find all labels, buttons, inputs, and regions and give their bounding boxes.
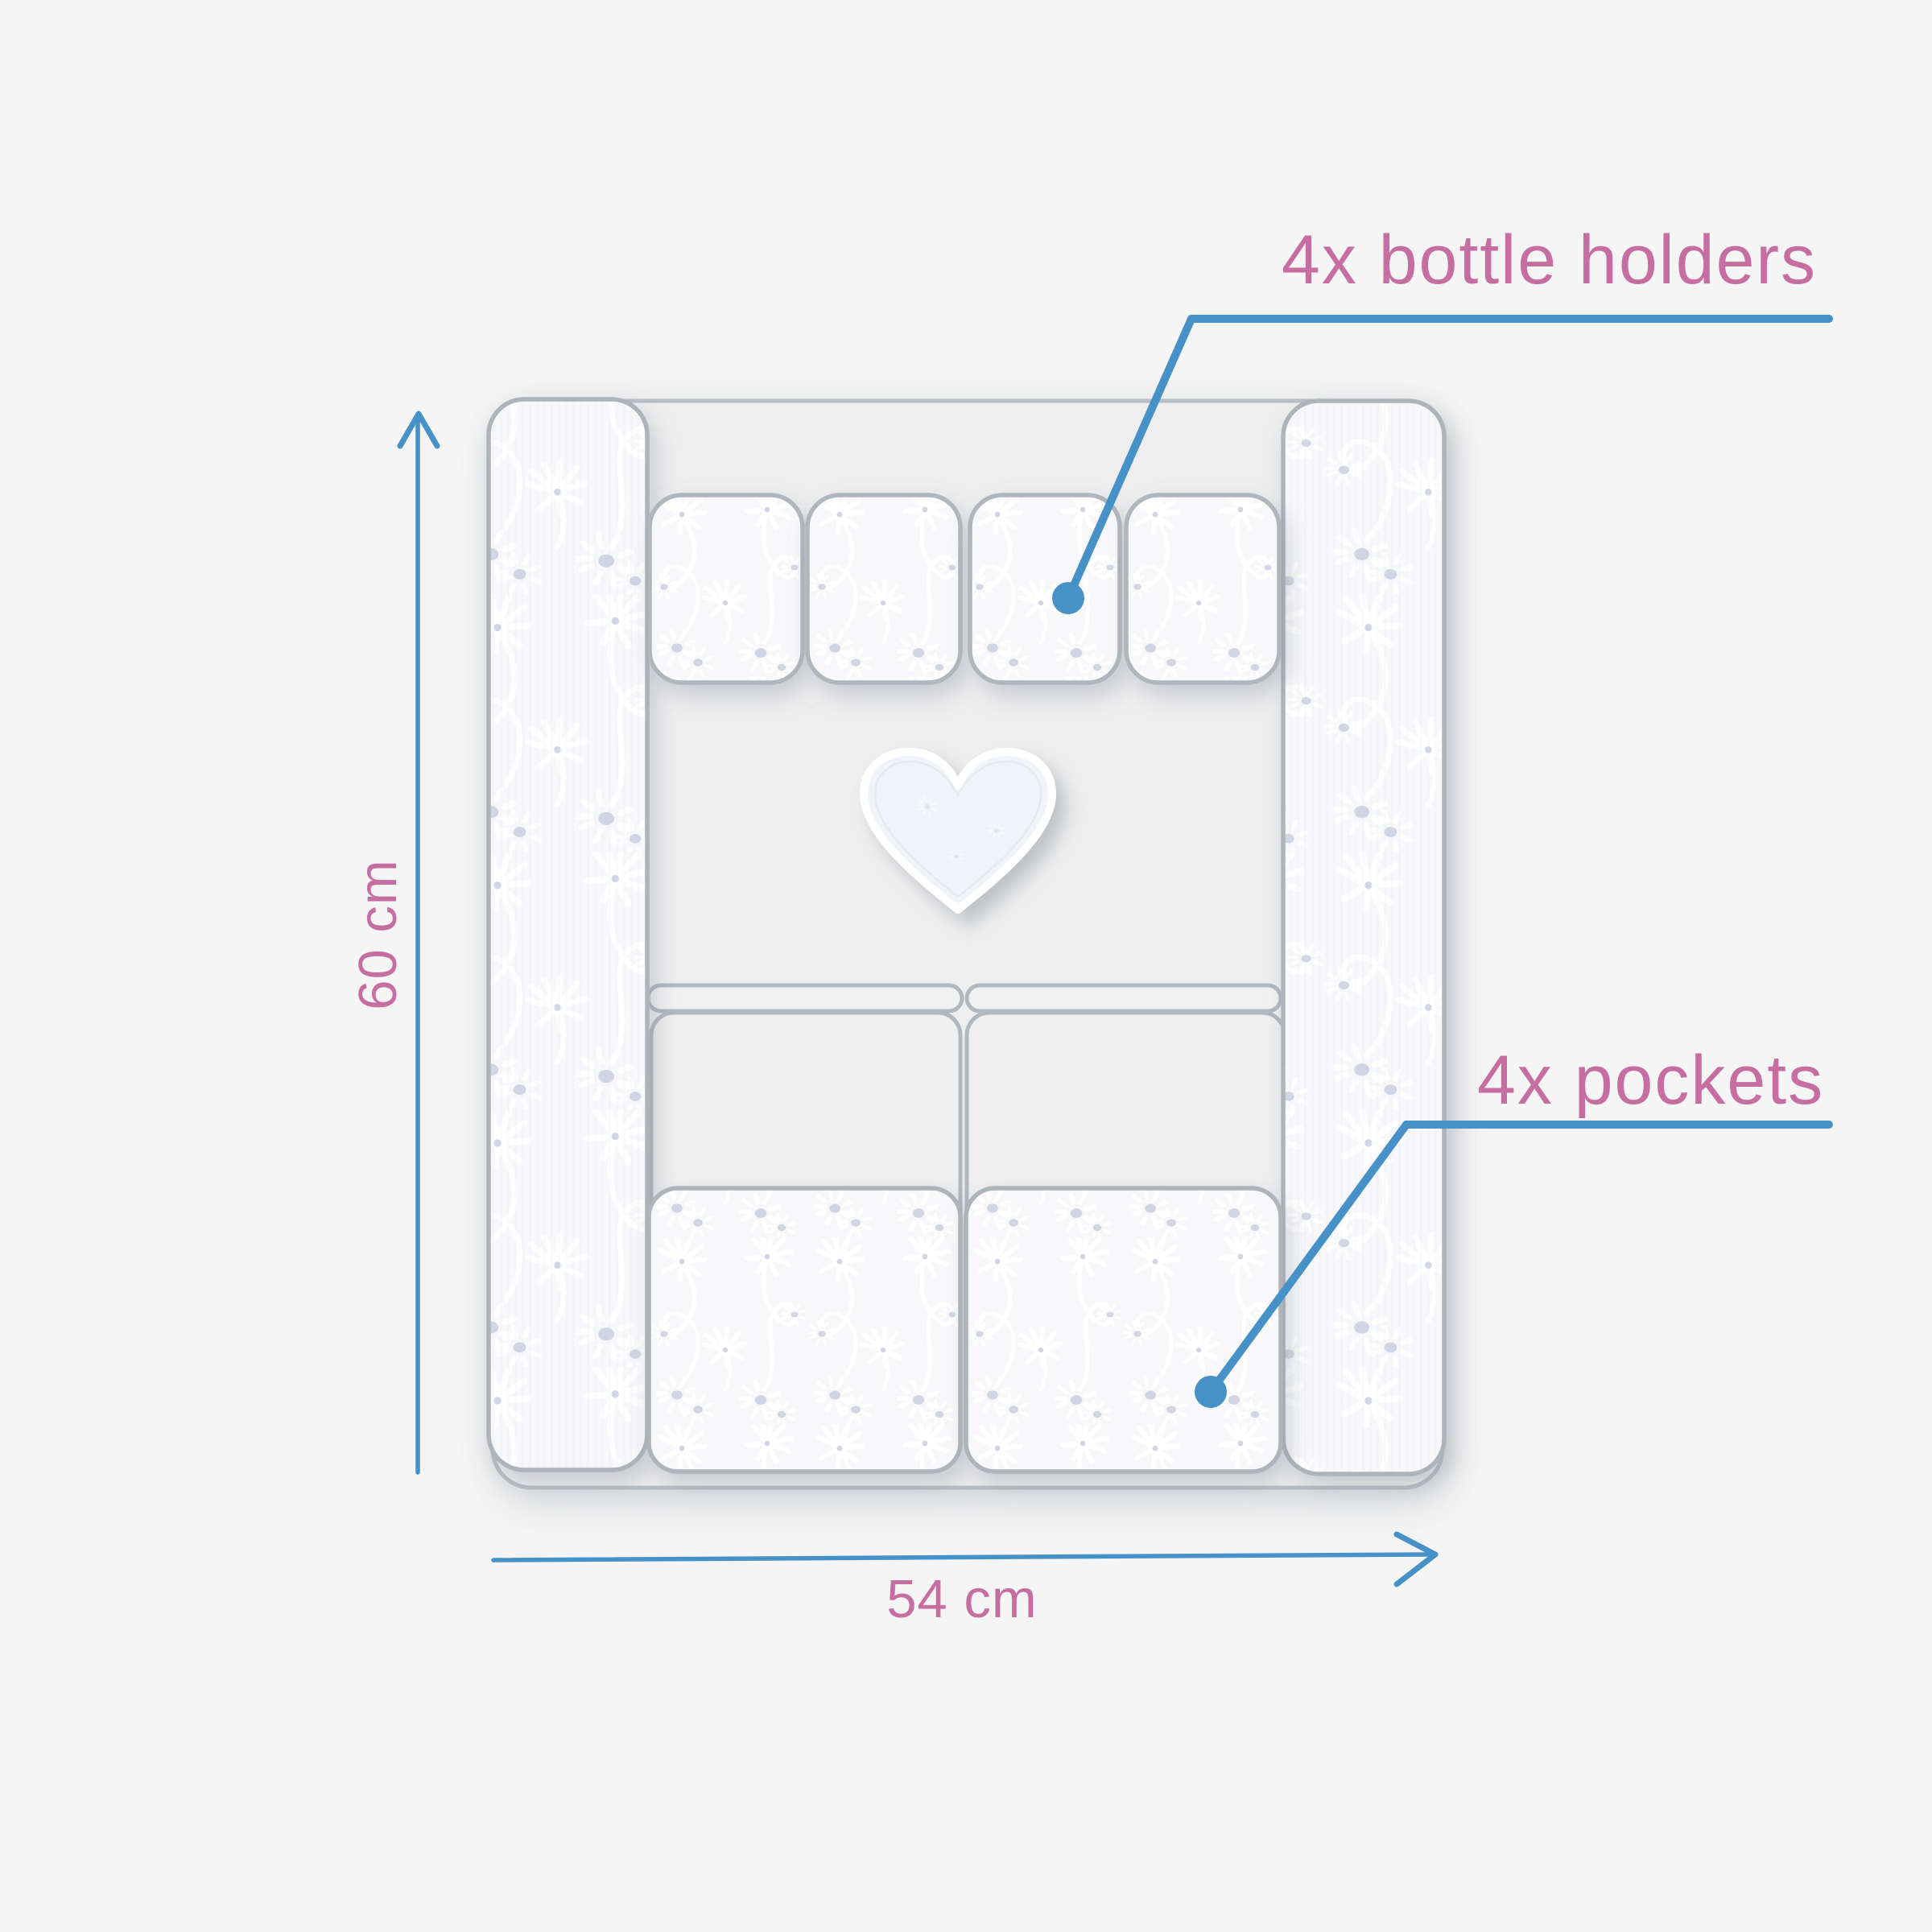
svg-text:4x pockets: 4x pockets	[1477, 1042, 1824, 1119]
svg-text:60 cm: 60 cm	[348, 859, 408, 1009]
svg-text:54 cm: 54 cm	[886, 1569, 1037, 1629]
svg-text:4x bottle holders: 4x bottle holders	[1282, 221, 1817, 299]
